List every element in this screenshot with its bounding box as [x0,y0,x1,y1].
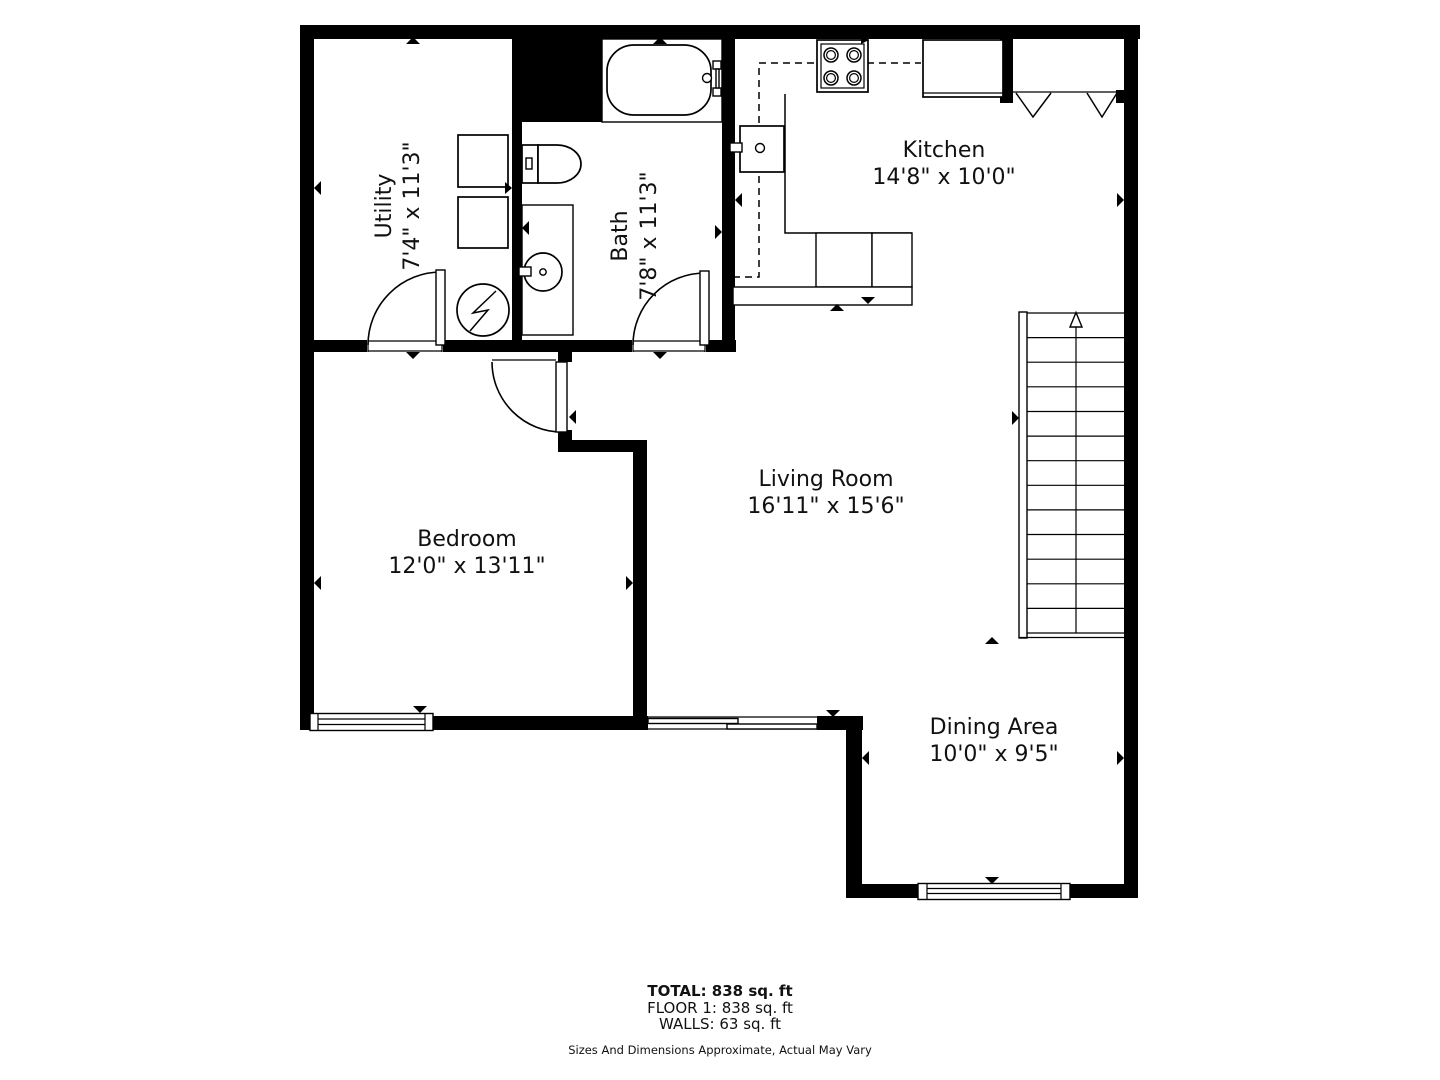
summary-block: TOTAL: 838 sq. ft FLOOR 1: 838 sq. ft WA… [568,982,872,1057]
utility-door [368,270,445,345]
marker-kitchen-left [735,193,742,207]
bath-dims: 7'8" x 11'3" [637,171,662,300]
water-heater-icon [457,284,509,336]
utility-name: Utility [372,174,397,239]
sliding-glass-door [648,716,817,730]
stairs-up-arrow-icon [1070,313,1082,328]
dining-area-name: Dining Area [930,715,1059,740]
marker-bath-right [715,225,722,239]
wall-dining-west [846,716,862,898]
marker-utility-threshold [406,352,420,359]
bathtub-icon [602,39,722,122]
staircase [1019,312,1124,638]
living-room-name: Living Room [758,467,893,492]
wall-right [1124,25,1138,898]
bedroom-dims: 12'0" x 13'11" [388,554,545,579]
room-label-dining-area: Dining Area 10'0" x 9'5" [929,715,1058,767]
kitchen-dims: 14'8" x 10'0" [872,165,1015,190]
wall-block-bath-northwest [512,39,602,122]
floor-plan-svg: Utility 7'4" x 11'3" Bath 7'8" x 11'3" K… [0,0,1440,1080]
wall-bedroom-door-stub-upper [558,352,572,362]
marker-bedroom-left [314,576,321,590]
marker-below-stairs [985,637,999,644]
wall-top [300,25,1140,39]
toilet-icon [522,145,581,183]
marker-utility-left [314,181,321,195]
closet-bifold-doors [1013,92,1124,117]
room-label-bath: Bath 7'8" x 11'3" [608,171,662,300]
washer-icon [458,135,508,187]
room-label-utility: Utility 7'4" x 11'3" [372,141,425,270]
bedroom-door [492,360,567,432]
marker-slider [826,710,840,717]
bedroom-name: Bedroom [417,527,517,552]
refrigerator-icon [923,40,1003,97]
marker-livingroom-left [569,410,576,424]
bath-name: Bath [608,210,633,261]
utility-dims: 7'4" x 11'3" [400,141,425,270]
disclaimer-text: Sizes And Dimensions Approximate, Actual… [568,1043,872,1057]
marker-dining-right [1117,751,1124,765]
bedroom-window [310,714,433,731]
threshold-bath-door [632,339,706,353]
living-room-dims: 16'11" x 15'6" [747,494,904,519]
marker-bath-threshold [653,352,667,359]
summary-walls: WALLS: 63 sq. ft [659,1015,781,1033]
marker-bedroom-right [626,576,633,590]
floor-plan-page: Utility 7'4" x 11'3" Bath 7'8" x 11'3" K… [0,0,1440,1080]
stove-icon [817,40,868,92]
marker-kitchen-right [1117,193,1124,207]
summary-total: TOTAL: 838 sq. ft [647,982,792,1000]
wall-bedroom-east [633,440,647,716]
kitchen-name: Kitchen [903,138,986,163]
marker-bedroom-window [413,706,427,713]
wall-left [300,25,314,730]
room-label-living-room: Living Room 16'11" x 15'6" [747,467,904,519]
marker-livingroom-right [1012,411,1019,425]
room-label-kitchen: Kitchen 14'8" x 10'0" [872,138,1015,190]
walls [300,25,1140,898]
dining-area-dims: 10'0" x 9'5" [929,742,1058,767]
room-label-bedroom: Bedroom 12'0" x 13'11" [388,527,545,579]
threshold-utility-door [367,339,443,353]
dryer-icon [458,197,508,248]
kitchen-sink [730,126,784,172]
marker-dining-left [862,751,869,765]
dining-window [918,884,1070,900]
